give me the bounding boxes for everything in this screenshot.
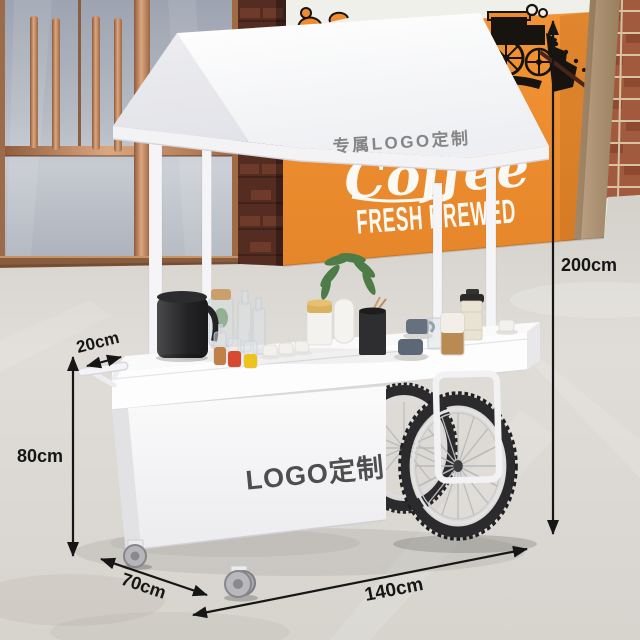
layered-drink-glass — [441, 313, 464, 355]
canopy-roof: 专属LOGO定制 — [113, 13, 549, 171]
product-photo: Coffee FRESH BREWED — [0, 0, 640, 640]
dimension-label-total-height: 200cm — [561, 255, 617, 275]
canopy-post-back-right — [433, 183, 442, 335]
scene-svg: Coffee FRESH BREWED — [0, 0, 640, 640]
gold-canister — [307, 300, 332, 346]
door-split-frame — [78, 0, 81, 150]
canopy-post-front-right — [486, 168, 496, 330]
dimension-label-cabinet-height: 80cm — [17, 446, 63, 466]
electric-kettle — [156, 291, 216, 362]
